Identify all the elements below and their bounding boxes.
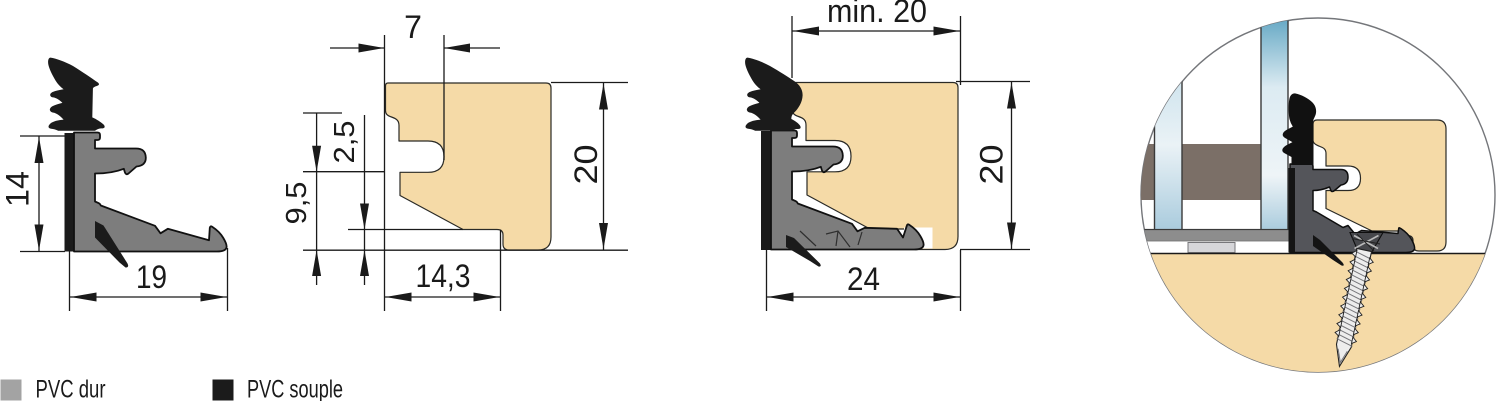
svg-text:9,5: 9,5 <box>281 182 313 225</box>
svg-text:2,5: 2,5 <box>329 121 361 164</box>
svg-text:24: 24 <box>847 261 880 297</box>
svg-text:PVC dur: PVC dur <box>36 376 106 401</box>
svg-text:14,3: 14,3 <box>416 258 471 294</box>
svg-text:19: 19 <box>136 259 167 295</box>
svg-text:20: 20 <box>974 145 1010 185</box>
svg-text:PVC souple: PVC souple <box>247 376 343 401</box>
svg-text:20: 20 <box>568 145 604 185</box>
svg-text:14: 14 <box>0 171 36 207</box>
svg-text:7: 7 <box>404 9 422 45</box>
svg-text:min. 20: min. 20 <box>827 0 927 29</box>
